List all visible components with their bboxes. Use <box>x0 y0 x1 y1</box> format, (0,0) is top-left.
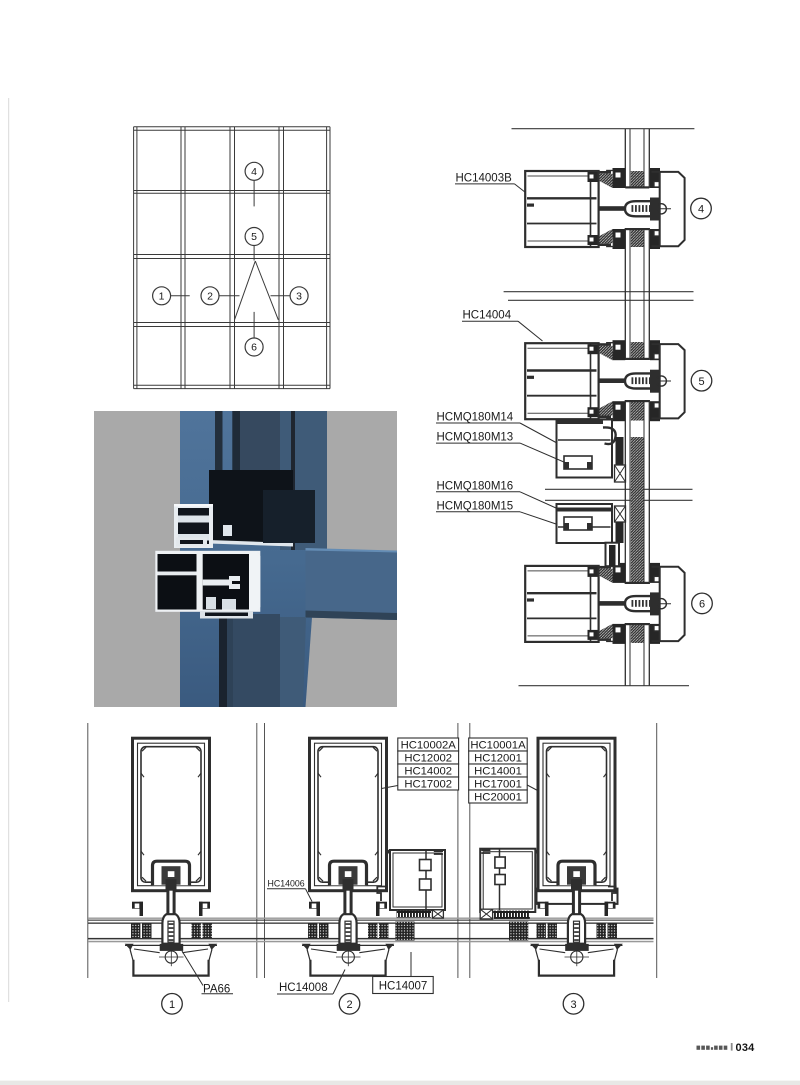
svg-text:HC10001A: HC10001A <box>470 739 526 751</box>
svg-text:HC14003B: HC14003B <box>456 173 513 185</box>
svg-text:HC20001: HC20001 <box>474 791 522 803</box>
svg-text:HC14007: HC14007 <box>379 981 428 993</box>
svg-text:HCMQ180M16: HCMQ180M16 <box>437 481 514 493</box>
svg-text:HC14004: HC14004 <box>463 310 512 322</box>
svg-text:HCMQ180M13: HCMQ180M13 <box>437 431 514 443</box>
svg-text:HC12001: HC12001 <box>474 752 522 764</box>
svg-text:HCMQ180M15: HCMQ180M15 <box>437 501 514 513</box>
svg-text:5: 5 <box>698 376 704 388</box>
svg-text:1: 1 <box>169 999 175 1011</box>
svg-text:034: 034 <box>736 1042 756 1054</box>
svg-text:3: 3 <box>296 291 302 303</box>
svg-text:HC17002: HC17002 <box>404 778 452 790</box>
svg-text:6: 6 <box>251 342 257 354</box>
svg-text:2: 2 <box>207 291 213 303</box>
svg-text:4: 4 <box>698 204 704 216</box>
svg-text:HC17001: HC17001 <box>474 778 522 790</box>
svg-text:HC14001: HC14001 <box>474 765 522 777</box>
svg-text:HC12002: HC12002 <box>404 752 452 764</box>
svg-text:HC14008: HC14008 <box>279 982 328 994</box>
svg-text:2: 2 <box>346 999 352 1011</box>
svg-text:HC10002A: HC10002A <box>401 739 457 751</box>
svg-text:1: 1 <box>159 291 165 303</box>
svg-text:3: 3 <box>570 999 576 1011</box>
svg-text:4: 4 <box>251 166 257 178</box>
svg-text:5: 5 <box>251 231 257 243</box>
svg-text:HCMQ180M14: HCMQ180M14 <box>437 411 514 423</box>
svg-text:HC14006: HC14006 <box>268 879 305 889</box>
svg-text:6: 6 <box>699 599 705 611</box>
svg-text:HC14002: HC14002 <box>404 765 452 777</box>
